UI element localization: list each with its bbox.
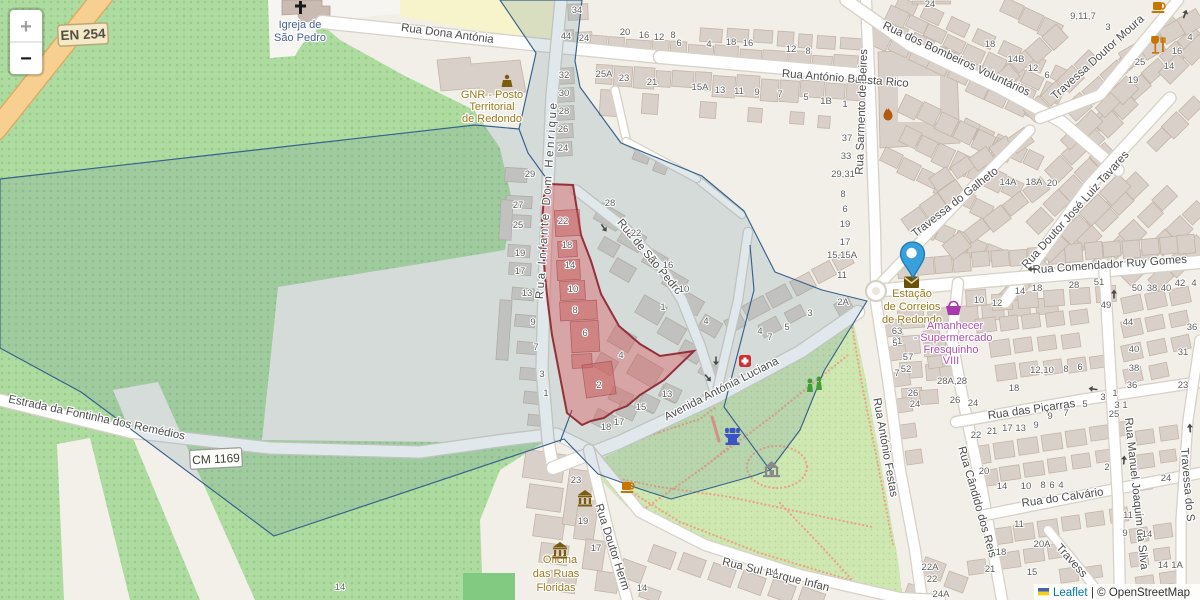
svg-text:24: 24 bbox=[925, 0, 936, 10]
svg-text:24: 24 bbox=[558, 143, 569, 154]
svg-text:17: 17 bbox=[614, 417, 625, 428]
svg-text:16: 16 bbox=[663, 260, 674, 271]
svg-text:23: 23 bbox=[619, 73, 630, 84]
svg-text:14: 14 bbox=[637, 583, 648, 594]
svg-text:VIII: VIII bbox=[943, 355, 960, 367]
svg-text:8: 8 bbox=[572, 305, 577, 316]
svg-text:14: 14 bbox=[1142, 529, 1153, 540]
svg-text:das Ruas: das Ruas bbox=[533, 568, 580, 580]
svg-text:17 13: 17 13 bbox=[1002, 423, 1026, 434]
svg-text:GNR - Posto: GNR - Posto bbox=[461, 89, 523, 101]
svg-text:12: 12 bbox=[786, 44, 797, 55]
svg-text:18: 18 bbox=[1009, 383, 1020, 394]
svg-text:40: 40 bbox=[1129, 344, 1140, 355]
svg-text:4: 4 bbox=[1187, 32, 1192, 43]
svg-text:15A: 15A bbox=[692, 82, 710, 93]
svg-text:18A: 18A bbox=[1026, 177, 1044, 188]
svg-text:28: 28 bbox=[559, 106, 570, 117]
svg-text:28A,28: 28A,28 bbox=[937, 376, 967, 387]
svg-text:7: 7 bbox=[767, 332, 772, 343]
svg-text:2: 2 bbox=[1104, 462, 1109, 473]
svg-text:20: 20 bbox=[1047, 178, 1058, 189]
svg-text:17: 17 bbox=[591, 543, 602, 554]
svg-text:18: 18 bbox=[1032, 283, 1043, 294]
svg-text:57: 57 bbox=[903, 352, 914, 363]
svg-text:20A: 20A bbox=[1034, 539, 1052, 550]
svg-text:13: 13 bbox=[522, 288, 533, 299]
svg-text:26: 26 bbox=[950, 395, 961, 406]
svg-text:17: 17 bbox=[840, 237, 851, 248]
svg-text:5: 5 bbox=[784, 322, 789, 333]
svg-text:29: 29 bbox=[525, 169, 536, 180]
svg-text:11: 11 bbox=[1014, 519, 1024, 530]
svg-text:11: 11 bbox=[837, 270, 847, 281]
svg-text:25A: 25A bbox=[596, 69, 614, 80]
svg-text:12,10: 12,10 bbox=[1030, 365, 1054, 376]
svg-text:1: 1 bbox=[1112, 388, 1117, 399]
svg-text:São Pedro: São Pedro bbox=[274, 32, 326, 44]
svg-text:22: 22 bbox=[558, 216, 569, 227]
svg-text:38: 38 bbox=[1129, 363, 1140, 374]
svg-text:5: 5 bbox=[892, 338, 897, 349]
svg-text:12: 12 bbox=[1028, 63, 1039, 74]
svg-text:22A: 22A bbox=[922, 562, 940, 573]
svg-text:8: 8 bbox=[805, 46, 810, 57]
svg-text:10: 10 bbox=[568, 284, 579, 295]
svg-text:19: 19 bbox=[515, 248, 526, 259]
svg-text:3: 3 bbox=[1100, 392, 1105, 403]
svg-text:3 1: 3 1 bbox=[1114, 400, 1127, 411]
svg-text:CM 1169: CM 1169 bbox=[192, 451, 241, 467]
svg-text:9: 9 bbox=[530, 317, 535, 328]
svg-text:de Redondo: de Redondo bbox=[462, 113, 522, 125]
svg-text:5: 5 bbox=[803, 92, 808, 103]
svg-text:13: 13 bbox=[662, 389, 673, 400]
svg-text:17: 17 bbox=[515, 266, 526, 277]
svg-text:44: 44 bbox=[1123, 317, 1134, 328]
svg-text:14: 14 bbox=[1015, 286, 1026, 297]
svg-text:10: 10 bbox=[679, 284, 690, 295]
svg-text:6: 6 bbox=[842, 204, 847, 215]
svg-text:19: 19 bbox=[840, 219, 851, 230]
svg-text:14: 14 bbox=[997, 481, 1008, 492]
svg-text:de Correios: de Correios bbox=[884, 301, 941, 313]
svg-text:15: 15 bbox=[636, 402, 647, 413]
svg-text:EN 254: EN 254 bbox=[60, 26, 106, 43]
svg-text:3: 3 bbox=[539, 369, 544, 380]
svg-text:11: 11 bbox=[734, 86, 744, 97]
svg-text:21: 21 bbox=[647, 77, 658, 88]
svg-text:Amanhecer: Amanhecer bbox=[927, 320, 984, 332]
svg-text:1: 1 bbox=[842, 99, 847, 110]
svg-text:8: 8 bbox=[1040, 480, 1045, 491]
svg-text:18: 18 bbox=[601, 422, 612, 433]
svg-text:30: 30 bbox=[559, 88, 570, 99]
svg-text:13: 13 bbox=[715, 85, 726, 96]
svg-text:6: 6 bbox=[1044, 70, 1049, 81]
svg-text:11: 11 bbox=[1123, 510, 1133, 521]
svg-text:40: 40 bbox=[1161, 283, 1172, 294]
svg-text:9: 9 bbox=[1033, 420, 1038, 431]
svg-text:32: 32 bbox=[559, 70, 570, 81]
svg-text:8: 8 bbox=[840, 189, 845, 200]
svg-text:4: 4 bbox=[703, 316, 708, 327]
svg-text:6: 6 bbox=[1049, 480, 1054, 491]
svg-text:1B: 1B bbox=[820, 96, 832, 107]
svg-text:25: 25 bbox=[513, 220, 524, 231]
svg-text:19: 19 bbox=[578, 516, 589, 527]
svg-text:18: 18 bbox=[562, 240, 573, 251]
svg-text:14: 14 bbox=[1164, 61, 1175, 72]
svg-text:37: 37 bbox=[842, 133, 853, 144]
svg-text:38: 38 bbox=[1147, 283, 1158, 294]
svg-text:1: 1 bbox=[543, 388, 548, 399]
svg-text:16: 16 bbox=[639, 30, 650, 41]
svg-text:24: 24 bbox=[579, 33, 590, 44]
svg-text:−: − bbox=[20, 48, 32, 70]
svg-text:4: 4 bbox=[618, 350, 623, 361]
svg-text:10: 10 bbox=[974, 295, 985, 306]
svg-text:23: 23 bbox=[571, 475, 582, 486]
svg-text:9,11,7: 9,11,7 bbox=[1070, 11, 1096, 22]
svg-text:50: 50 bbox=[1132, 283, 1143, 294]
svg-text:25: 25 bbox=[1135, 57, 1146, 68]
svg-text:18: 18 bbox=[996, 547, 1007, 558]
svg-text:14: 14 bbox=[1158, 560, 1169, 571]
svg-text:18: 18 bbox=[726, 37, 737, 48]
svg-text:7: 7 bbox=[894, 368, 899, 379]
svg-text:9: 9 bbox=[1122, 528, 1127, 539]
svg-text:4: 4 bbox=[1191, 278, 1196, 289]
svg-text:| © OpenStreetMap: | © OpenStreetMap bbox=[1091, 587, 1190, 599]
svg-text:7: 7 bbox=[533, 342, 538, 353]
svg-text:Floridas: Floridas bbox=[536, 582, 576, 594]
svg-text:14: 14 bbox=[768, 567, 779, 578]
svg-text:24: 24 bbox=[968, 398, 979, 409]
svg-text:Leaflet: Leaflet bbox=[1053, 587, 1088, 599]
svg-text:8: 8 bbox=[1063, 364, 1068, 375]
svg-text:16: 16 bbox=[743, 38, 754, 49]
svg-text:2A: 2A bbox=[837, 297, 849, 308]
svg-text:26: 26 bbox=[558, 124, 569, 135]
svg-text:3: 3 bbox=[1105, 22, 1110, 33]
svg-text:14B: 14B bbox=[1008, 54, 1025, 65]
svg-text:10: 10 bbox=[1021, 481, 1032, 492]
svg-text:24A: 24A bbox=[933, 589, 951, 600]
svg-text:8: 8 bbox=[670, 30, 675, 41]
svg-text:42: 42 bbox=[1175, 278, 1186, 289]
svg-text:12: 12 bbox=[992, 298, 1003, 309]
svg-text:26: 26 bbox=[908, 388, 919, 399]
svg-text:3: 3 bbox=[807, 308, 812, 319]
svg-text:22: 22 bbox=[631, 228, 642, 239]
svg-text:Igreja de: Igreja de bbox=[279, 19, 322, 31]
svg-text:52: 52 bbox=[901, 364, 912, 375]
svg-text:36: 36 bbox=[1127, 380, 1138, 391]
svg-text:2: 2 bbox=[596, 380, 601, 391]
svg-text:18: 18 bbox=[985, 39, 996, 50]
svg-text:1A: 1A bbox=[1171, 560, 1183, 571]
svg-text:4: 4 bbox=[757, 326, 762, 337]
svg-text:19: 19 bbox=[1128, 75, 1139, 86]
svg-text:Estação: Estação bbox=[892, 288, 932, 300]
svg-text:6: 6 bbox=[676, 38, 681, 49]
svg-text:24: 24 bbox=[910, 399, 921, 410]
svg-text:22: 22 bbox=[971, 430, 982, 441]
svg-text:44: 44 bbox=[561, 31, 572, 42]
svg-text:Territorial: Territorial bbox=[469, 101, 514, 113]
svg-text:7: 7 bbox=[1063, 408, 1068, 419]
svg-text:- Supermercado: - Supermercado bbox=[914, 332, 993, 344]
svg-text:12: 12 bbox=[654, 32, 665, 43]
svg-text:6: 6 bbox=[582, 328, 587, 339]
svg-text:24: 24 bbox=[1161, 473, 1172, 484]
svg-text:4: 4 bbox=[706, 39, 711, 50]
svg-text:9: 9 bbox=[754, 87, 759, 98]
svg-text:15: 15 bbox=[1027, 567, 1038, 578]
svg-text:21: 21 bbox=[985, 564, 996, 575]
svg-text:21: 21 bbox=[987, 426, 998, 437]
svg-text:7: 7 bbox=[777, 89, 782, 100]
svg-text:51: 51 bbox=[1094, 277, 1105, 288]
svg-text:1: 1 bbox=[660, 302, 665, 313]
svg-text:6: 6 bbox=[1077, 362, 1082, 373]
svg-text:14: 14 bbox=[335, 582, 346, 593]
svg-text:27: 27 bbox=[513, 200, 524, 211]
svg-text:16: 16 bbox=[1172, 46, 1183, 57]
svg-text:15,15A: 15,15A bbox=[827, 250, 858, 261]
svg-text:4: 4 bbox=[1058, 480, 1063, 491]
svg-text:28: 28 bbox=[1069, 280, 1080, 291]
svg-text:14A: 14A bbox=[1000, 177, 1018, 188]
svg-text:20: 20 bbox=[620, 27, 631, 38]
svg-text:14: 14 bbox=[565, 260, 576, 271]
svg-text:22: 22 bbox=[927, 574, 938, 585]
svg-text:+: + bbox=[20, 16, 32, 38]
svg-text:33: 33 bbox=[841, 151, 852, 162]
svg-text:31: 31 bbox=[1178, 347, 1189, 358]
svg-text:20: 20 bbox=[979, 466, 990, 477]
svg-text:36: 36 bbox=[1187, 322, 1198, 333]
svg-text:34: 34 bbox=[572, 5, 583, 16]
svg-text:29,31: 29,31 bbox=[831, 169, 855, 180]
svg-text:28: 28 bbox=[605, 198, 616, 209]
svg-text:23: 23 bbox=[1178, 380, 1189, 391]
svg-text:5: 5 bbox=[1082, 399, 1087, 410]
svg-text:9: 9 bbox=[1047, 411, 1052, 422]
svg-text:49: 49 bbox=[1101, 300, 1112, 311]
